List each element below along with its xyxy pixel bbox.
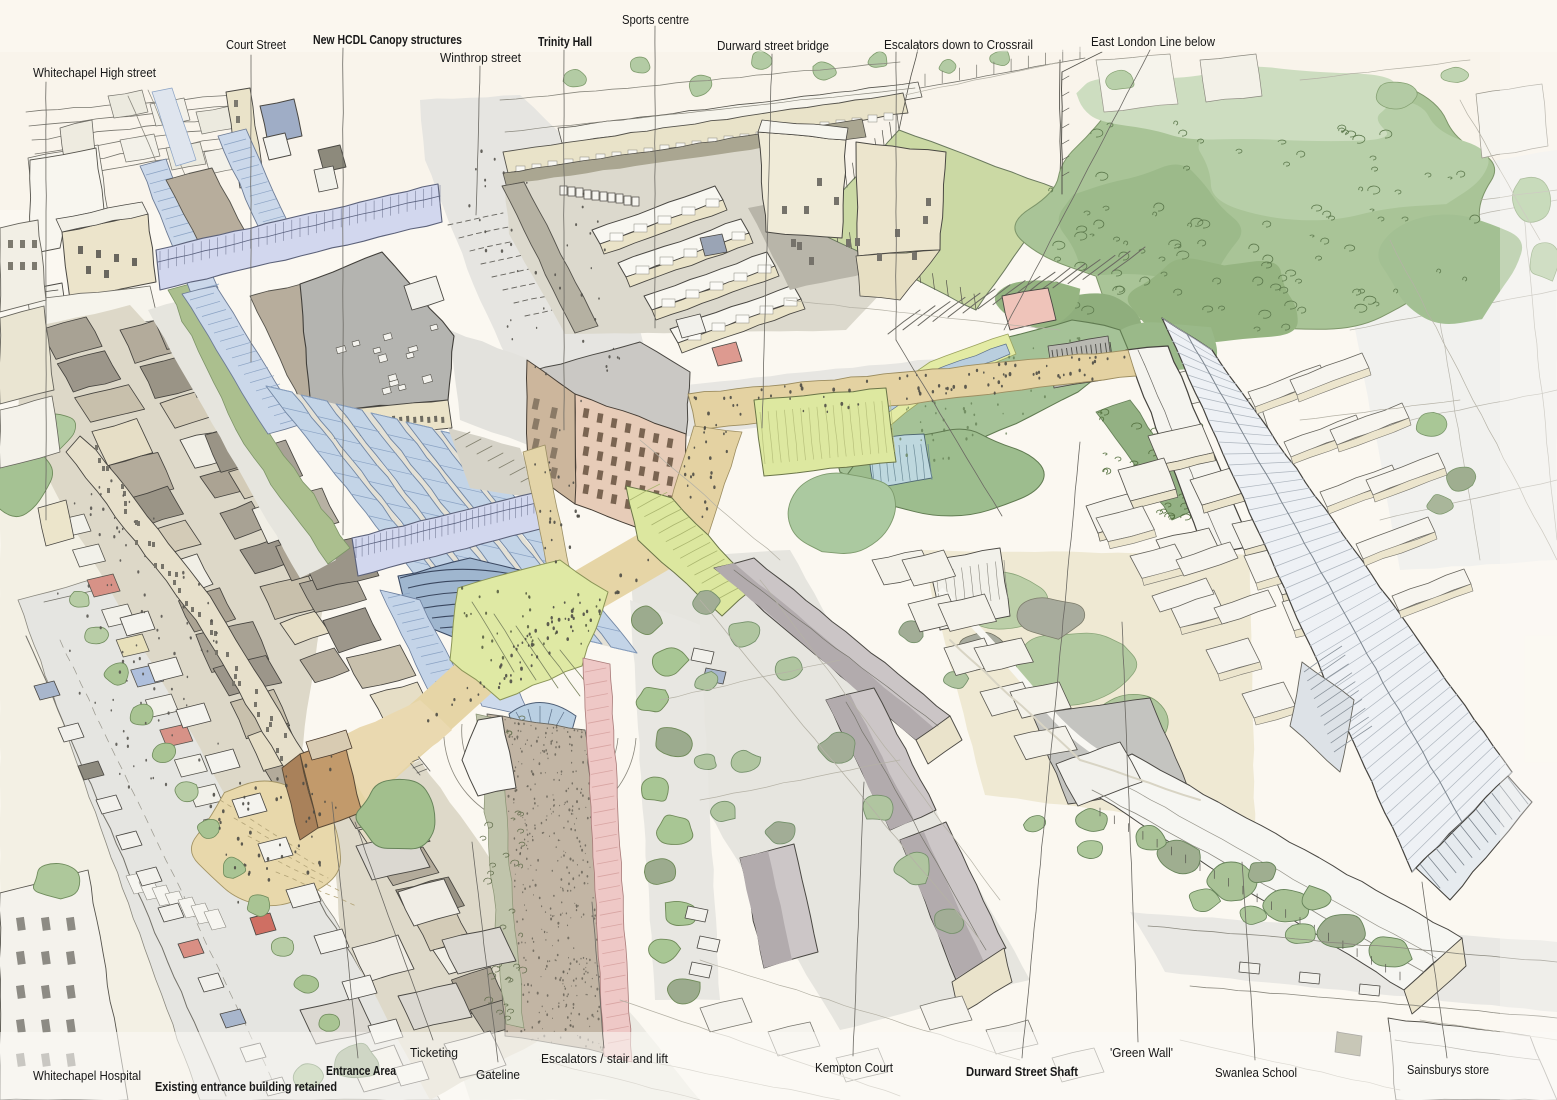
svg-text:Escalators down to Crossrail: Escalators down to Crossrail bbox=[884, 38, 1033, 52]
svg-text:Swanlea School: Swanlea School bbox=[1215, 1066, 1297, 1080]
svg-text:Existing entrance building ret: Existing entrance building retained bbox=[155, 1080, 337, 1094]
svg-text:Court Street: Court Street bbox=[226, 38, 286, 52]
svg-text:Entrance Area: Entrance Area bbox=[326, 1064, 397, 1078]
svg-text:Sainsburys store: Sainsburys store bbox=[1407, 1063, 1489, 1077]
svg-text:Escalators / stair and lift: Escalators / stair and lift bbox=[541, 1052, 668, 1066]
svg-text:New HCDL Canopy structures: New HCDL Canopy structures bbox=[313, 33, 462, 47]
svg-text:Ticketing: Ticketing bbox=[410, 1046, 458, 1060]
svg-text:Whitechapel Hospital: Whitechapel Hospital bbox=[33, 1069, 141, 1083]
svg-text:'Green Wall': 'Green Wall' bbox=[1110, 1046, 1173, 1060]
svg-text:Kempton Court: Kempton Court bbox=[815, 1061, 893, 1075]
svg-text:Gateline: Gateline bbox=[476, 1068, 520, 1082]
svg-text:Whitechapel High street: Whitechapel High street bbox=[33, 66, 156, 80]
svg-text:Trinity Hall: Trinity Hall bbox=[538, 35, 592, 49]
svg-text:Winthrop street: Winthrop street bbox=[440, 51, 521, 65]
svg-text:Sports centre: Sports centre bbox=[622, 13, 689, 27]
svg-text:Durward street bridge: Durward street bridge bbox=[717, 39, 829, 53]
svg-text:Durward Street Shaft: Durward Street Shaft bbox=[966, 1065, 1079, 1079]
svg-text:East London Line below: East London Line below bbox=[1091, 35, 1216, 49]
